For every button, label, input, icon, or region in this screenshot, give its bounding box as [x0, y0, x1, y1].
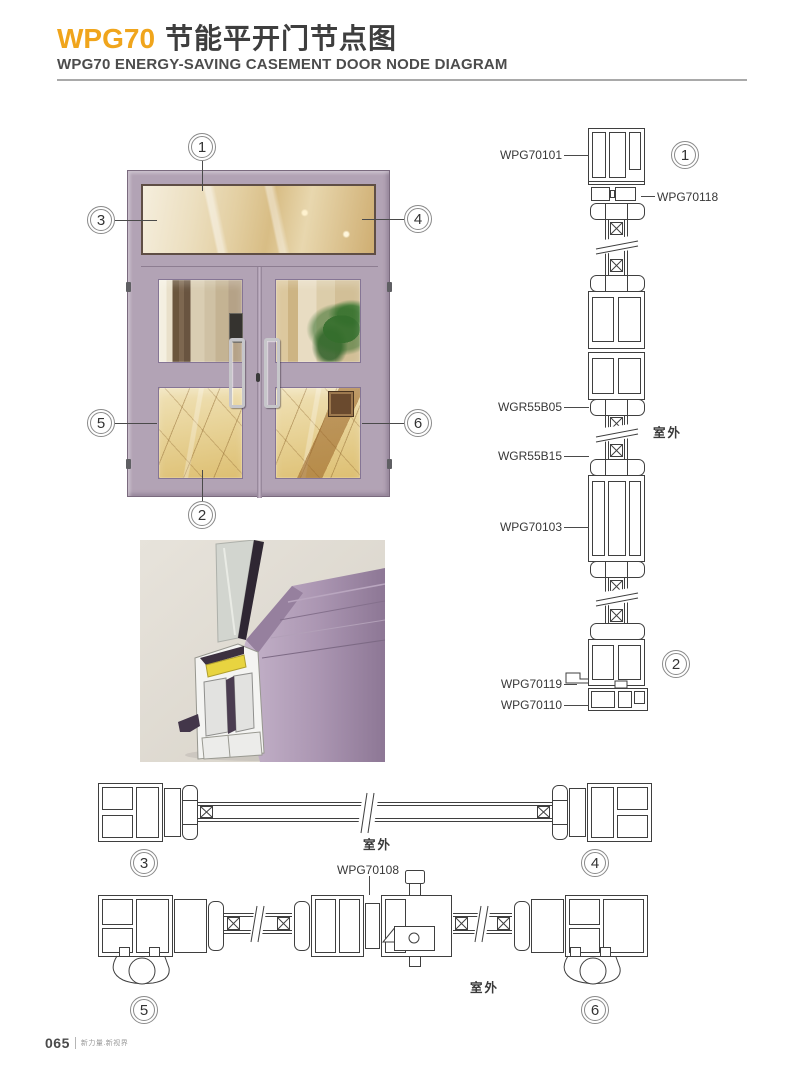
- elevation-callout-1: 1: [188, 133, 216, 161]
- leader-callout-5: [115, 423, 157, 424]
- leader-wpg70119: [564, 684, 577, 685]
- elevation-callout-3: 3: [87, 206, 115, 234]
- leaf-glass-upper-right: [275, 279, 361, 363]
- leader-wpg70101: [564, 155, 589, 156]
- section-callout-1: 1: [671, 141, 699, 169]
- meeting-stile-line: [257, 267, 262, 498]
- label-outside-vertical: 室外: [653, 422, 682, 441]
- door-elevation: [127, 170, 390, 497]
- leader-wgr55b15: [564, 456, 589, 457]
- leader-callout-2: [202, 470, 203, 501]
- leader-callout-1: [202, 161, 203, 191]
- footer-tagline: 新力量.新视界: [81, 1038, 128, 1048]
- brand-code: WPG70: [57, 23, 155, 54]
- page-subtitle: WPG70 ENERGY-SAVING CASEMENT DOOR NODE D…: [57, 56, 747, 73]
- section-callout-6: 6: [581, 996, 609, 1024]
- label-wpg70118: WPG70118: [657, 190, 718, 204]
- label-wgr55b15: WGR55B15: [482, 449, 562, 463]
- door-handle-left: [229, 338, 245, 408]
- transom-glass: [141, 184, 376, 255]
- vertical-section-drawing: [560, 123, 655, 715]
- label-wgr55b05: WGR55B05: [482, 400, 562, 414]
- header-rule: [57, 79, 747, 81]
- elevation-callout-6: 6: [404, 409, 432, 437]
- label-wpg70103: WPG70103: [482, 520, 562, 534]
- hinge-right-lower: [387, 459, 392, 469]
- leader-wpg70103: [564, 527, 589, 528]
- hinge-right-upper: [387, 282, 392, 292]
- label-wpg70110: WPG70110: [482, 698, 562, 712]
- interior-cabinet: [328, 391, 354, 417]
- page-header: WPG70节能平开门节点图 WPG70 ENERGY-SAVING CASEME…: [57, 22, 747, 81]
- horizontal-section-56-drawing: [95, 868, 655, 990]
- leader-callout-4: [362, 219, 404, 220]
- leader-wpg70110: [564, 705, 589, 706]
- label-wpg70119: WPG70119: [482, 677, 562, 691]
- profile-3d-render: [140, 540, 385, 762]
- elevation-callout-4: 4: [404, 205, 432, 233]
- elevation-callout-5: 5: [87, 409, 115, 437]
- label-outside-section-34: 室外: [363, 834, 392, 853]
- leader-callout-6: [362, 423, 404, 424]
- page-footer: 065 新力量.新视界: [45, 1035, 128, 1051]
- page-title: WPG70节能平开门节点图: [57, 22, 747, 56]
- catalog-page: WPG70节能平开门节点图 WPG70 ENERGY-SAVING CASEME…: [0, 0, 800, 1085]
- label-outside-section-56: 室外: [470, 977, 499, 996]
- keyhole: [256, 373, 260, 382]
- hinge-left-lower: [126, 459, 131, 469]
- label-wpg70101: WPG70101: [482, 148, 562, 162]
- door-handle-right: [264, 338, 280, 408]
- leader-wpg70118: [641, 196, 655, 197]
- section-callout-2: 2: [662, 650, 690, 678]
- page-number: 065: [45, 1035, 70, 1051]
- title-cn: 节能平开门节点图: [165, 23, 397, 54]
- footer-divider: [75, 1037, 76, 1049]
- section-callout-5: 5: [130, 996, 158, 1024]
- leader-wgr55b05: [564, 407, 589, 408]
- elevation-callout-2: 2: [188, 501, 216, 529]
- leader-callout-3: [115, 220, 157, 221]
- hinge-left-upper: [126, 282, 131, 292]
- leaf-glass-lower-right: [275, 387, 361, 479]
